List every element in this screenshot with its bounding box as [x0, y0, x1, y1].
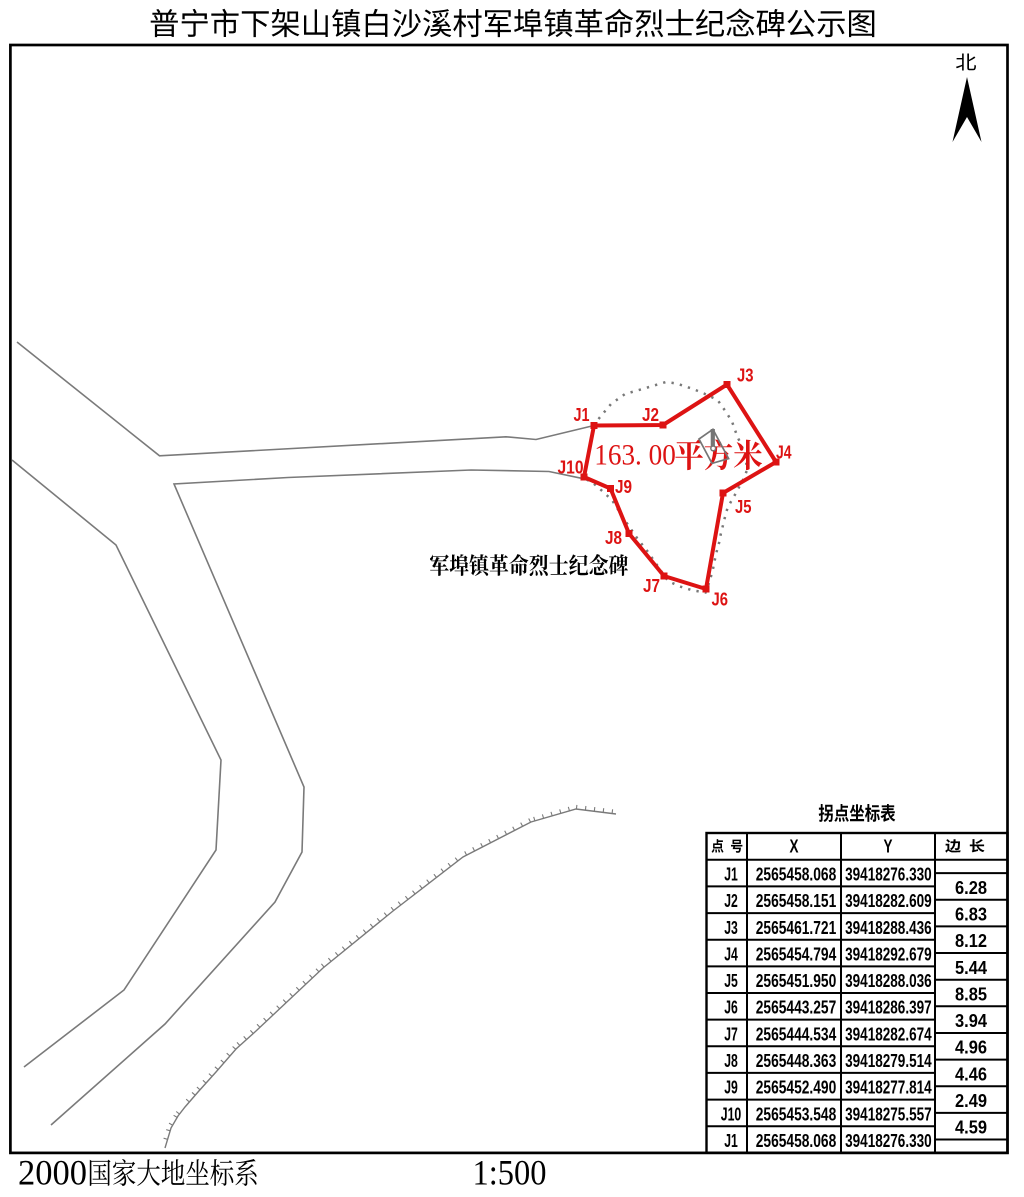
svg-text:2565444.534: 2565444.534 [756, 1024, 837, 1044]
svg-text:2.49: 2.49 [955, 1091, 987, 1111]
svg-text:8.85: 8.85 [955, 984, 987, 1004]
svg-text:2565451.950: 2565451.950 [756, 971, 837, 991]
svg-text:39418276.330: 39418276.330 [845, 865, 932, 885]
svg-text:39418292.679: 39418292.679 [845, 944, 932, 964]
svg-text:J7: J7 [643, 575, 660, 596]
svg-text:39418276.330: 39418276.330 [845, 1131, 932, 1151]
svg-text:39418275.557: 39418275.557 [845, 1104, 932, 1124]
svg-text:J5: J5 [735, 496, 752, 517]
svg-text:J4: J4 [776, 442, 792, 463]
svg-text:39418277.814: 39418277.814 [845, 1078, 932, 1098]
svg-text:2565452.490: 2565452.490 [756, 1078, 837, 1098]
svg-text:39418288.036: 39418288.036 [845, 971, 932, 991]
svg-text:J3: J3 [724, 918, 738, 938]
svg-text:J7: J7 [724, 1024, 738, 1044]
svg-text:4.46: 4.46 [955, 1064, 987, 1084]
svg-text:2565461.721: 2565461.721 [756, 918, 837, 938]
svg-text:39418286.397: 39418286.397 [845, 998, 932, 1018]
svg-text:J1: J1 [724, 1131, 738, 1151]
svg-text:J3: J3 [737, 365, 754, 386]
svg-text:X: X [790, 837, 799, 857]
svg-text:J2: J2 [724, 891, 738, 911]
svg-text:Y: Y [884, 837, 893, 857]
svg-text:39418282.674: 39418282.674 [845, 1024, 932, 1044]
svg-text:39418288.436: 39418288.436 [845, 918, 932, 938]
svg-text:4.59: 4.59 [955, 1118, 987, 1138]
svg-text:J6: J6 [712, 589, 729, 610]
svg-text:J10: J10 [721, 1104, 742, 1124]
svg-text:J1: J1 [724, 865, 738, 885]
svg-text:2000: 2000 [18, 1153, 87, 1193]
svg-text:3.94: 3.94 [955, 1011, 987, 1031]
svg-text:J8: J8 [605, 527, 622, 548]
svg-text:2565458.068: 2565458.068 [756, 1131, 837, 1151]
svg-text:2565458.068: 2565458.068 [756, 865, 837, 885]
svg-text:2565448.363: 2565448.363 [756, 1051, 837, 1071]
svg-text:J2: J2 [642, 404, 659, 425]
svg-text:1:500: 1:500 [473, 1153, 547, 1193]
svg-text:2565443.257: 2565443.257 [756, 998, 837, 1018]
svg-text:5.44: 5.44 [955, 958, 987, 978]
svg-text:J10: J10 [558, 457, 584, 478]
svg-text:2565453.548: 2565453.548 [756, 1104, 837, 1124]
svg-text:39418279.514: 39418279.514 [845, 1051, 932, 1071]
svg-text:J8: J8 [724, 1051, 738, 1071]
svg-text:39418282.609: 39418282.609 [845, 891, 932, 911]
svg-text:J9: J9 [615, 476, 632, 497]
svg-text:163. 00: 163. 00 [594, 438, 676, 471]
svg-text:2565454.794: 2565454.794 [756, 944, 837, 964]
svg-text:2565458.151: 2565458.151 [756, 891, 837, 911]
svg-text:J5: J5 [724, 971, 738, 991]
svg-text:J9: J9 [724, 1078, 738, 1098]
svg-text:4.96: 4.96 [955, 1038, 987, 1058]
svg-text:6.28: 6.28 [955, 878, 987, 898]
svg-text:J6: J6 [724, 998, 738, 1018]
svg-text:J1: J1 [574, 404, 590, 425]
svg-text:J4: J4 [724, 944, 738, 964]
svg-text:8.12: 8.12 [955, 931, 987, 951]
svg-text:6.83: 6.83 [955, 905, 987, 925]
